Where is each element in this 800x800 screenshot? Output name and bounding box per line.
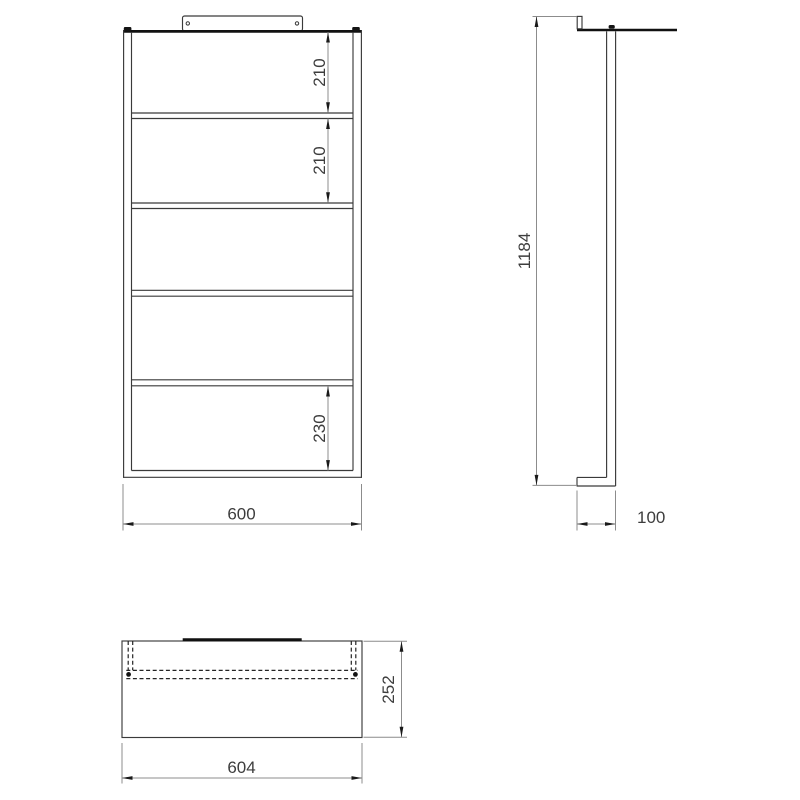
side-view: 1184 100: [515, 16, 677, 530]
arrowhead: [122, 776, 133, 780]
side-frame-profile: [577, 31, 616, 486]
arrowhead: [326, 192, 330, 203]
front-width-dimension: 600: [123, 484, 362, 531]
front-vertical-dimensions: 210 210 230: [310, 32, 330, 471]
dim-label-height: 1184: [515, 233, 534, 270]
dim-label-shelf-gap-1: 210: [310, 58, 329, 86]
arrowhead: [326, 102, 330, 113]
plan-screw-left: [126, 672, 131, 677]
arrowhead: [326, 32, 330, 43]
side-depth-dimension: 100: [577, 491, 665, 531]
dim-label-shelf-gap-bottom: 230: [310, 414, 329, 442]
plan-depth-dimension: 252: [364, 641, 408, 737]
arrowhead: [535, 17, 539, 28]
arrowhead: [605, 522, 616, 526]
arrowhead: [123, 522, 134, 526]
plan-width-dimension: 604: [122, 743, 362, 784]
drawing-canvas: 210 210 230 600: [0, 0, 800, 800]
arrowhead: [326, 460, 330, 471]
arrowhead: [577, 522, 588, 526]
front-outer-frame: [123, 30, 362, 478]
arrowhead: [351, 522, 362, 526]
front-screw-left: [124, 27, 132, 31]
dim-label-depth: 100: [637, 508, 665, 527]
plan-screw-right: [353, 672, 358, 677]
bracket-hole-right: [295, 22, 298, 25]
arrowhead: [326, 119, 330, 130]
arrowhead: [326, 386, 330, 397]
arrowhead: [400, 727, 404, 738]
dim-label-shelf-gap-2: 210: [310, 146, 329, 174]
front-view: 210 210 230 600: [123, 16, 362, 531]
dim-label-plan-depth: 252: [379, 675, 398, 703]
arrowhead: [352, 776, 363, 780]
front-screw-right: [352, 27, 360, 31]
front-inner-frame: [132, 33, 354, 471]
side-mounting-bracket: [577, 16, 582, 28]
side-screw-top: [609, 25, 615, 29]
arrowhead: [535, 475, 539, 486]
side-height-dimension: 1184: [515, 17, 577, 486]
arrowhead: [400, 641, 404, 652]
shelf-unit-technical-drawing: 210 210 230 600: [0, 0, 800, 800]
bracket-hole-left: [186, 22, 189, 25]
plan-hidden-frame-lines: [126, 641, 358, 679]
front-mounting-bracket: [183, 16, 303, 31]
dim-label-plan-width: 604: [227, 758, 255, 777]
plan-view: 252 604: [122, 640, 407, 784]
plan-top-shelf-outline: [122, 641, 362, 738]
dim-label-front-width: 600: [227, 505, 255, 524]
